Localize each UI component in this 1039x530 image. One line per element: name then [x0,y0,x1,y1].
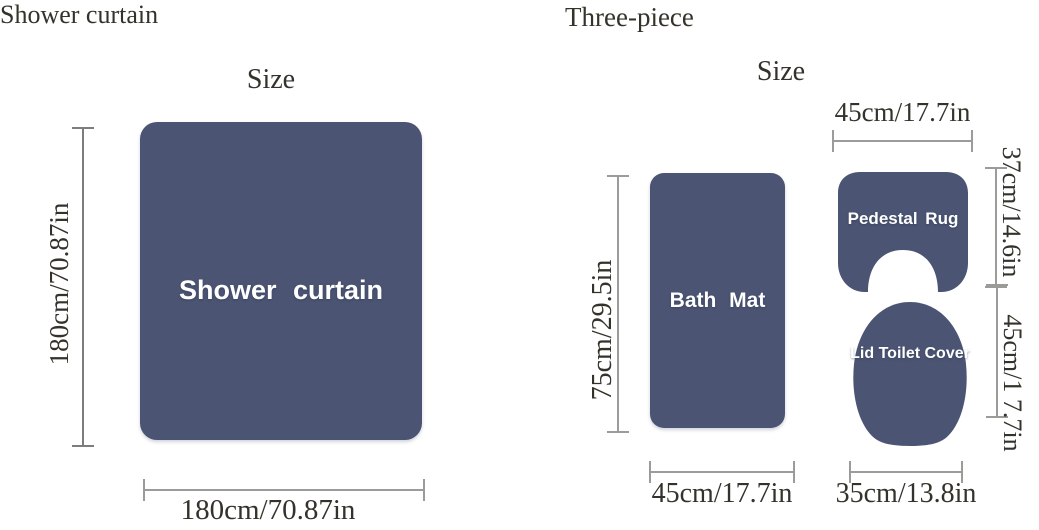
lid-toilet-cover-width-label: 35cm/13.8in [826,478,986,510]
bath-mat-width-label: 45cm/17.7in [642,478,802,510]
lid-toilet-cover-height-label: 45cm/1 7.7in [1001,285,1027,481]
pedestal-rug-shape-label: Pedestal Rug [838,209,968,229]
pedestal-rug-height-label: 37cm/14.6in [1000,132,1026,292]
lid-toilet-cover-shape-label: Lid Toilet Cover [850,343,970,365]
lid-toilet-cover-shape [850,300,970,450]
bath-mat-width-dimension-line [649,471,795,473]
pedestal-rug-shape [838,172,968,292]
pedestal-rug-width-label: 45cm/17.7in [830,97,975,128]
lid-toilet-cover-width-dimension-line [849,471,963,473]
bath-mat-shape-label: Bath Mat [670,289,766,313]
size-chart: Shower curtain Size 180cm/70.87in Shower… [0,0,1039,530]
bath-mat-shape: Bath Mat [650,173,785,428]
pedestal-rug-width-dimension-line [832,140,973,142]
bath-mat-height-label: 75cm/29.5in [587,230,615,430]
panel-title-three-piece: Three-piece [565,2,694,33]
three-piece-panel: Three-piece Size 75cm/29.5in Bath Mat 45… [0,0,1039,530]
size-heading-right: Size [706,56,856,88]
